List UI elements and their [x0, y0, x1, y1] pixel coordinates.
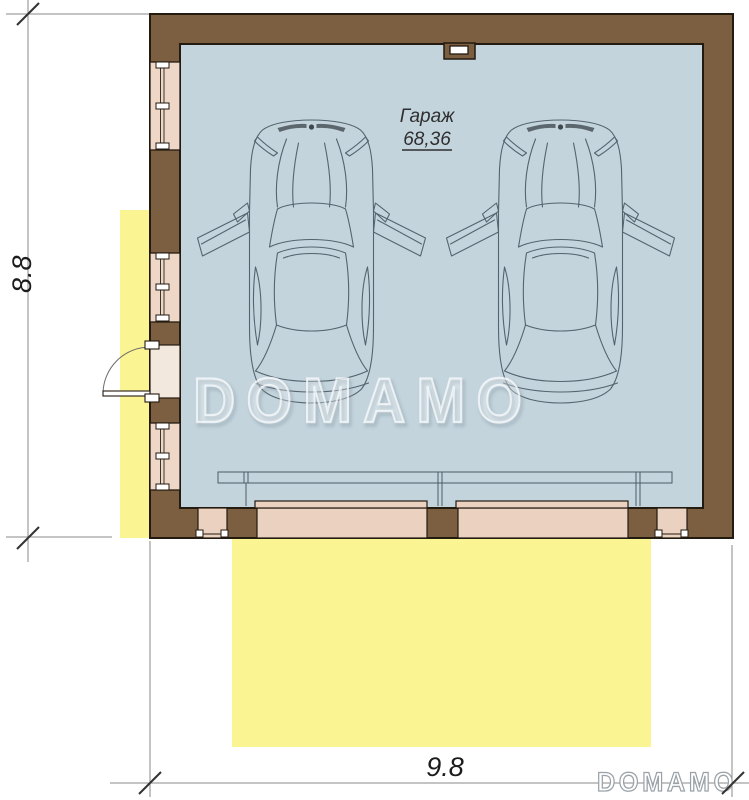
window-1: [150, 62, 180, 150]
dim-height-label: 8.8: [7, 255, 37, 293]
garage-opening-2: [458, 508, 628, 538]
garage-opening-1: [257, 508, 427, 538]
left-wall-windows: [150, 62, 180, 490]
watermark-corner-text: DOMAMO: [597, 767, 737, 797]
window-2: [150, 253, 180, 322]
room-area: 68,36: [403, 129, 451, 150]
window-3: [150, 423, 180, 490]
pedestrian-opening-right: [655, 508, 688, 538]
door-cavity: [150, 345, 180, 398]
door-jamb-bottom: [145, 394, 159, 402]
garage-door-leaf-2: [456, 501, 628, 508]
garage-door-leaf-1: [255, 501, 427, 508]
watermark-center-text: DOMAMO: [193, 366, 533, 436]
floor-plan-page: Гараж 68,36 DOMAMO DOMAMO 8.8 9.8 DOMAMO: [0, 0, 749, 800]
side-walkway: [120, 210, 150, 538]
floor-plan-canvas: Гараж 68,36 DOMAMO DOMAMO 8.8 9.8 DOMAMO: [0, 0, 749, 800]
door-jamb-top: [145, 341, 159, 349]
top-wall-vent: [444, 43, 475, 59]
dim-width-label: 9.8: [426, 752, 464, 782]
door-leaf: [103, 391, 150, 396]
pedestrian-opening-left: [196, 508, 228, 538]
room-name: Гараж: [400, 106, 455, 127]
driveway: [232, 538, 651, 747]
watermark-center: DOMAMO DOMAMO: [193, 366, 535, 439]
